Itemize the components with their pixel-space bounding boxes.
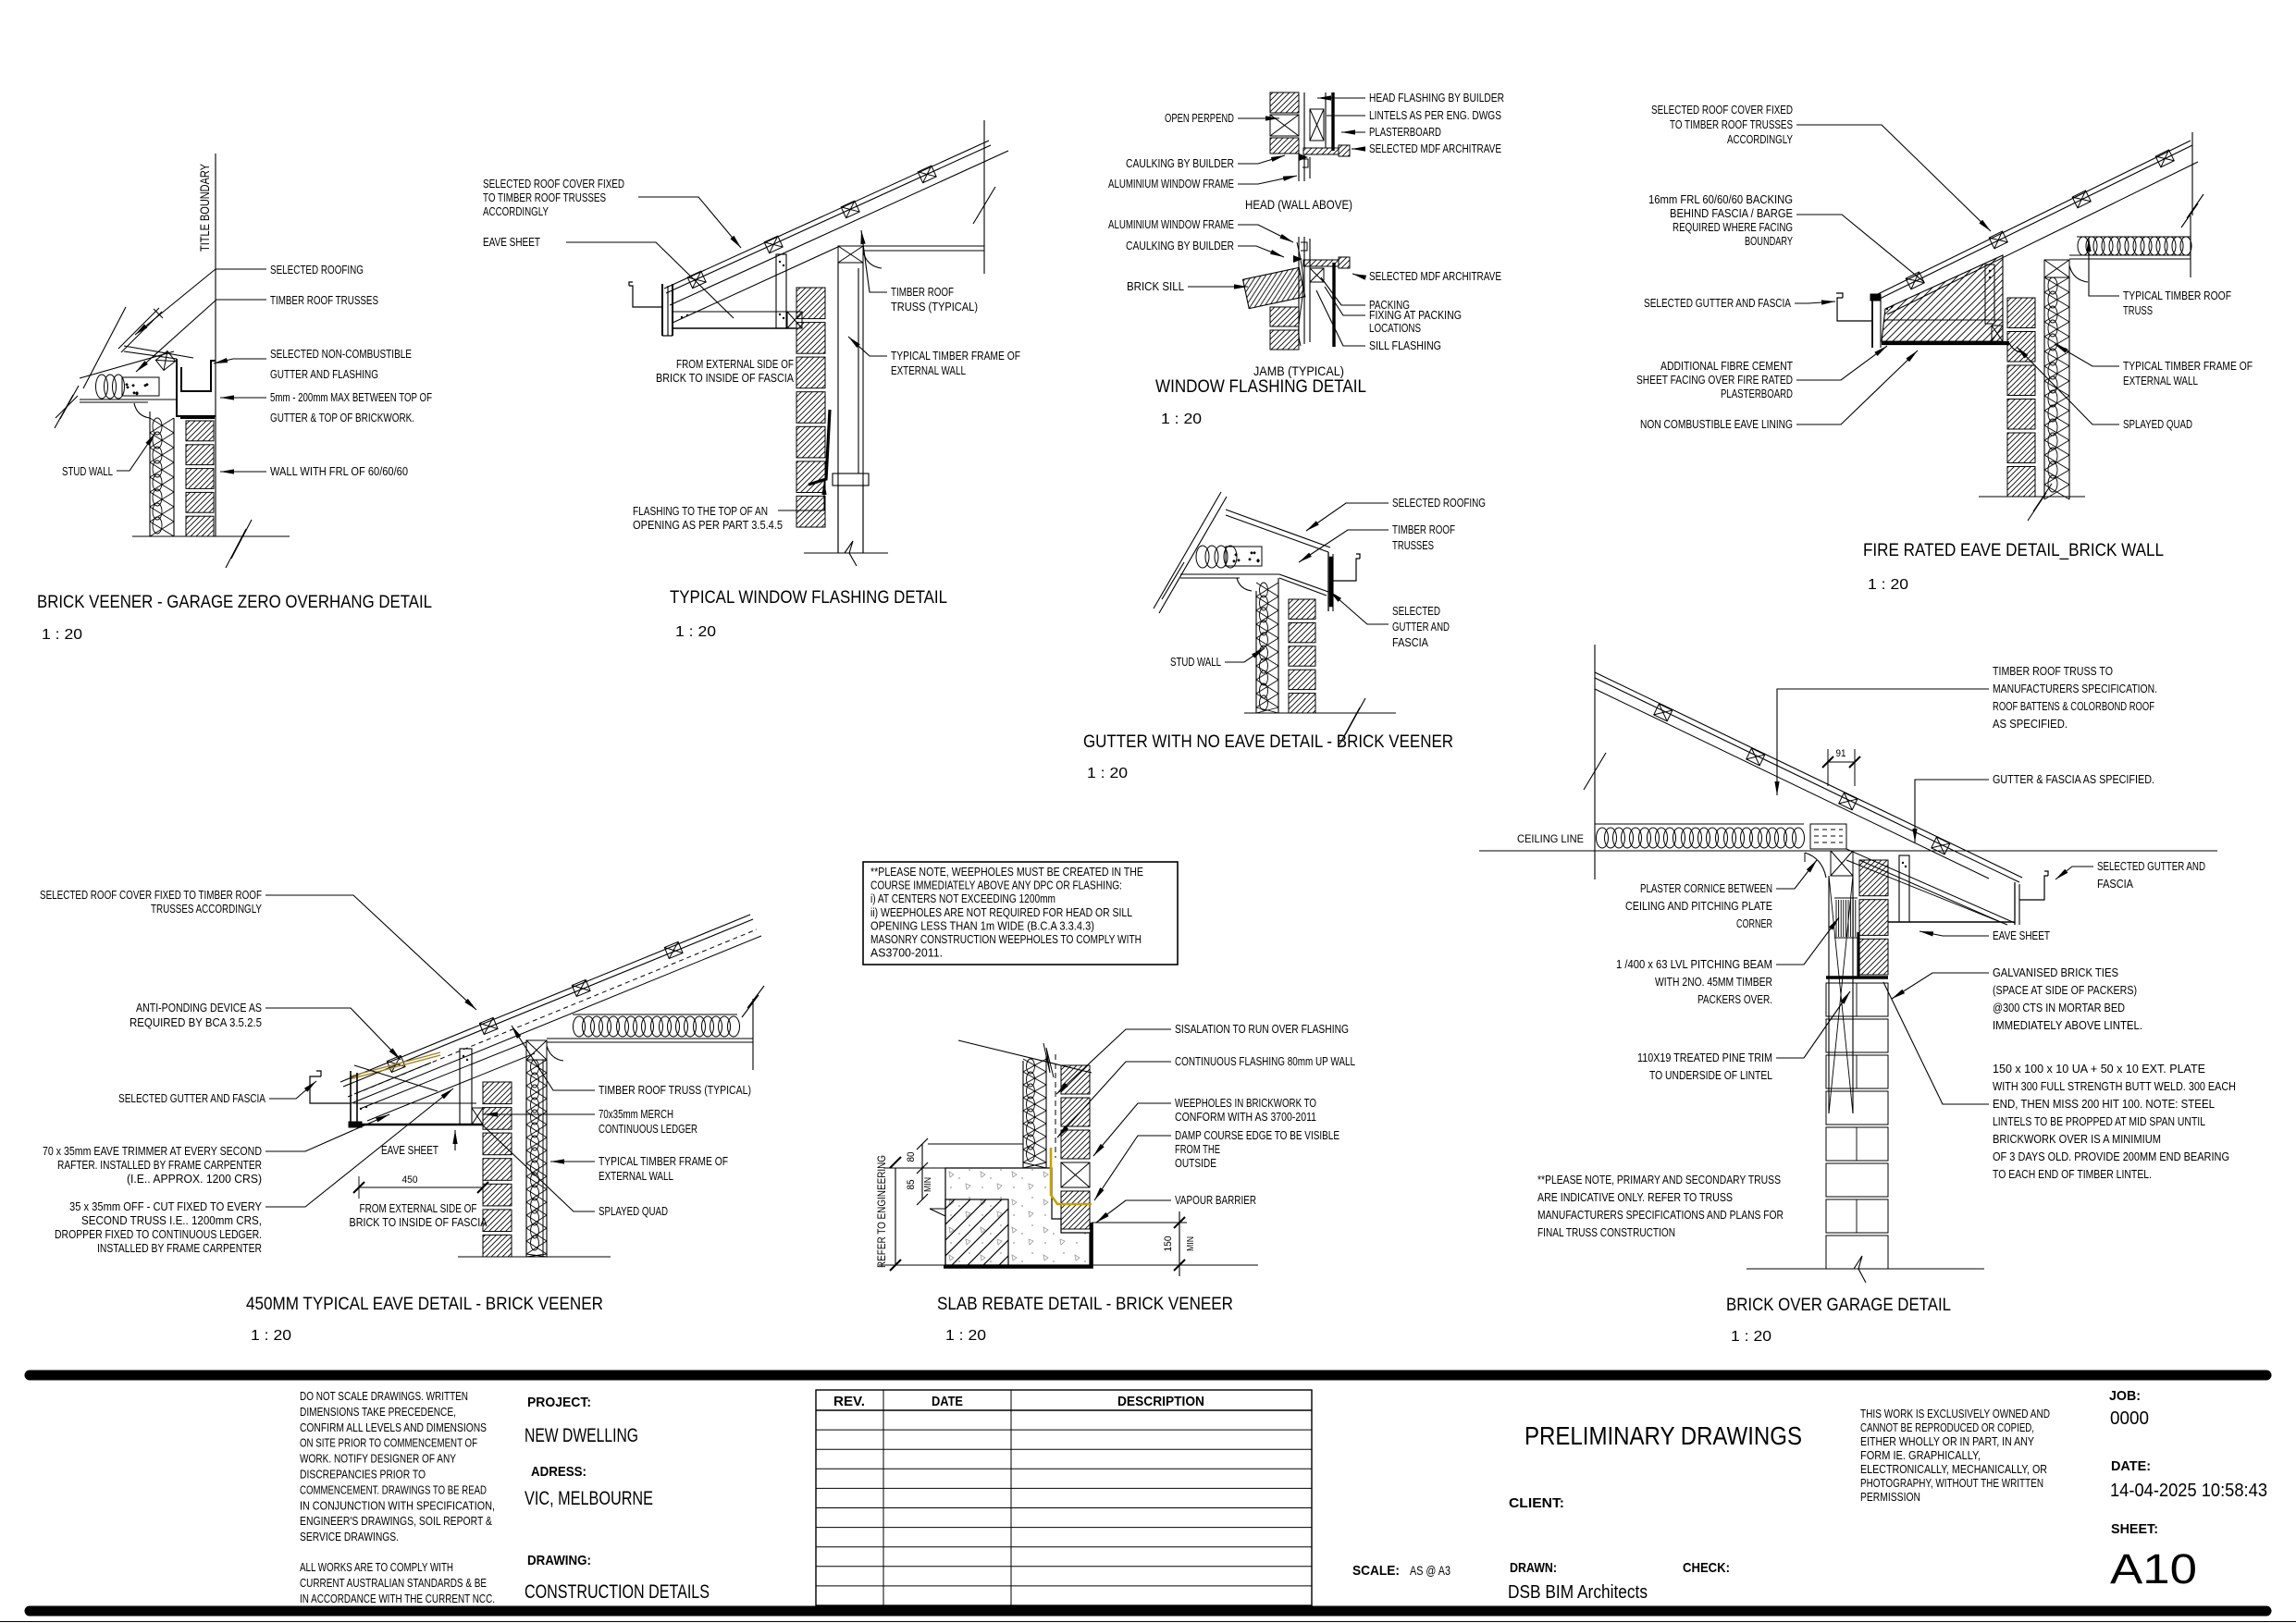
svg-text:FINAL TRUSS CONSTRUCTION: FINAL TRUSS CONSTRUCTION — [1537, 1225, 1675, 1239]
svg-text:SELECTED ROOFING: SELECTED ROOFING — [1392, 496, 1486, 510]
svg-text:EAVE SHEET: EAVE SHEET — [381, 1143, 438, 1157]
svg-text:70 x 35mm EAVE TRIMMER AT: 70 x 35mm EAVE TRIMMER AT EVERY SECOND — [43, 1144, 262, 1158]
svg-text:CONFORM WITH AS 3700-2011: CONFORM WITH AS 3700-2011 — [1175, 1110, 1316, 1124]
svg-text:TYPICAL TIMBER FRAME OF: TYPICAL TIMBER FRAME OF — [2123, 359, 2253, 373]
svg-text:WALL WITH FRL OF 60/60/60: WALL WITH FRL OF 60/60/60 — [270, 464, 408, 478]
svg-text:ADRESS:: ADRESS: — [531, 1464, 586, 1480]
svg-text:END, THEN MISS 200 HIT 100.: END, THEN MISS 200 HIT 100. NOTE: STEEL — [1993, 1097, 2215, 1111]
svg-text:PLASTERBOARD: PLASTERBOARD — [1369, 125, 1441, 139]
svg-text:PLASTERBOARD: PLASTERBOARD — [1721, 387, 1793, 400]
svg-text:JAMB (TYPICAL): JAMB (TYPICAL) — [1253, 363, 1344, 378]
svg-text:SELECTED NON-COMBUSTIBLE: SELECTED NON-COMBUSTIBLE — [270, 347, 412, 361]
svg-text:SELECTED GUTTER AND FASCIA: SELECTED GUTTER AND FASCIA — [1644, 296, 1791, 310]
svg-text:CONFIRM ALL LEVELS AND DIMENSI: CONFIRM ALL LEVELS AND DIMENSIONS — [300, 1421, 487, 1434]
svg-text:PLASTER CORNICE BETWEEN: PLASTER CORNICE BETWEEN — [1640, 881, 1772, 895]
svg-text:450MM TYPICAL EAVE DETAIL - BR: 450MM TYPICAL EAVE DETAIL - BRICK VEENER — [246, 1295, 603, 1314]
svg-text:SECOND TRUSS I.E.. 1200mm: SECOND TRUSS I.E.. 1200mm CRS, — [81, 1213, 262, 1227]
svg-text:AS SPECIFIED.: AS SPECIFIED. — [1993, 717, 2068, 731]
svg-text:BOUNDARY: BOUNDARY — [1745, 234, 1793, 248]
svg-text:CANNOT BE REPRODUCED OR COPIED: CANNOT BE REPRODUCED OR COPIED, — [1860, 1421, 2034, 1434]
svg-text:REV.: REV. — [833, 1394, 865, 1409]
svg-text:SELECTED ROOFING: SELECTED ROOFING — [270, 263, 364, 277]
svg-text:ADDITIONAL FIBRE CEMENT: ADDITIONAL FIBRE CEMENT — [1660, 359, 1793, 373]
svg-text:OF 3 DAYS OLD. PROVIDE 20: OF 3 DAYS OLD. PROVIDE 200MM END BEARING — [1993, 1150, 2229, 1163]
svg-text:ii) WEEPHOLES ARE NOT REQUIRE: ii) WEEPHOLES ARE NOT REQUIRED FOR HEAD … — [870, 906, 1132, 919]
svg-text:TYPICAL WINDOW FLASHING DETAIL: TYPICAL WINDOW FLASHING DETAIL — [670, 588, 947, 608]
svg-text:110X19 TREATED PINE TRIM: 110X19 TREATED PINE TRIM — [1637, 1051, 1772, 1064]
svg-text:WITH 300 FULL STRENGTH BUT: WITH 300 FULL STRENGTH BUTT WELD. 300 EA… — [1993, 1079, 2236, 1093]
svg-text:OPENING AS PER PART 3.5.4.5: OPENING AS PER PART 3.5.4.5 — [633, 518, 783, 532]
svg-text:COMMENCEMENT. DRAWINGS TO BE R: COMMENCEMENT. DRAWINGS TO BE READ — [300, 1483, 487, 1496]
svg-text:FASCIA: FASCIA — [2097, 877, 2133, 891]
svg-text:TO TIMBER ROOF TRUSSES: TO TIMBER ROOF TRUSSES — [1670, 117, 1793, 131]
svg-text:DATE: DATE — [932, 1394, 963, 1409]
svg-text:HEAD (WALL ABOVE): HEAD (WALL ABOVE) — [1245, 197, 1352, 212]
svg-text:ALUMINIUM WINDOW FRAME: ALUMINIUM WINDOW FRAME — [1108, 177, 1234, 191]
svg-text:OUTSIDE: OUTSIDE — [1175, 1156, 1216, 1170]
svg-text:1 : 20: 1 : 20 — [1161, 412, 1202, 427]
svg-text:DATE:: DATE: — [2111, 1458, 2151, 1474]
svg-text:ACCORDINGLY: ACCORDINGLY — [483, 204, 549, 218]
svg-text:DAMP COURSE EDGE TO BE VISIBLE: DAMP COURSE EDGE TO BE VISIBLE — [1175, 1128, 1339, 1142]
svg-text:A10: A10 — [2110, 1545, 2197, 1592]
svg-text:THIS WORK IS EXCLUSIVELY OWNED: THIS WORK IS EXCLUSIVELY OWNED AND — [1860, 1408, 2050, 1420]
svg-text:AS @ A3: AS @ A3 — [1410, 1563, 1450, 1578]
svg-text:REFER TO ENGINEERING: REFER TO ENGINEERING — [875, 1155, 888, 1268]
svg-text:PACKERS OVER.: PACKERS OVER. — [1697, 992, 1772, 1006]
svg-text:70x35mm MERCH: 70x35mm MERCH — [599, 1107, 673, 1121]
svg-text:FROM EXTERNAL SIDE OF: FROM EXTERNAL SIDE OF — [360, 1201, 477, 1215]
svg-text:MIN: MIN — [1185, 1236, 1196, 1251]
svg-text:EXTERNAL WALL: EXTERNAL WALL — [2123, 374, 2198, 387]
svg-text:5mm - 200mm MAX BETWEEN TOP OF: 5mm - 200mm MAX BETWEEN TOP OF — [270, 390, 432, 404]
svg-text:(SPACE AT SIDE OF PACKERS): (SPACE AT SIDE OF PACKERS) — [1993, 983, 2137, 997]
svg-text:ROOF BATTENS & COLORBOND ROOF: ROOF BATTENS & COLORBOND ROOF — [1993, 699, 2154, 713]
svg-text:91: 91 — [1836, 748, 1846, 759]
svg-text:INSTALLED BY FRAME CARPENTER: INSTALLED BY FRAME CARPENTER — [97, 1241, 262, 1255]
svg-text:**PLEASE NOTE, WEEPHOLES MUS: **PLEASE NOTE, WEEPHOLES MUST BE CREATED… — [870, 866, 1143, 879]
svg-text:@300 CTS IN MORTAR BED: @300 CTS IN MORTAR BED — [1993, 1001, 2125, 1014]
svg-text:TYPICAL TIMBER FRAME OF: TYPICAL TIMBER FRAME OF — [599, 1154, 728, 1168]
svg-text:(I.E.. APPROX. 1200 CRS): (I.E.. APPROX. 1200 CRS) — [127, 1172, 262, 1186]
svg-text:PRELIMINARY DRAWINGS: PRELIMINARY DRAWINGS — [1524, 1421, 1802, 1450]
svg-text:1 : 20: 1 : 20 — [1087, 766, 1128, 781]
svg-text:TIMBER ROOF: TIMBER ROOF — [891, 285, 954, 299]
svg-text:TRUSS: TRUSS — [2123, 303, 2153, 317]
svg-text:HEAD FLASHING BY BUILDER: HEAD FLASHING BY BUILDER — [1369, 91, 1504, 105]
svg-text:i) AT CENTERS NOT EXCEEDING 12: i) AT CENTERS NOT EXCEEDING 1200mm — [870, 892, 1055, 905]
svg-text:FORM IE. GRAPHICALLY,: FORM IE. GRAPHICALLY, — [1860, 1449, 1981, 1462]
svg-text:FASCIA: FASCIA — [1392, 635, 1428, 649]
svg-text:SHEET:: SHEET: — [2111, 1521, 2158, 1537]
svg-text:TO TIMBER ROOF TRUSSES: TO TIMBER ROOF TRUSSES — [483, 191, 606, 204]
svg-text:SILL FLASHING: SILL FLASHING — [1369, 339, 1441, 352]
svg-text:PHOTOGRAPHY, WITHOUT THE WRITT: PHOTOGRAPHY, WITHOUT THE WRITTEN — [1860, 1477, 2043, 1490]
svg-text:IN ACCORDANCE WITH THE CURRENT: IN ACCORDANCE WITH THE CURRENT NCC. — [300, 1592, 495, 1605]
svg-text:SHEET FACING OVER FIRE RATED: SHEET FACING OVER FIRE RATED — [1636, 373, 1793, 387]
svg-text:CAULKING BY BUILDER: CAULKING BY BUILDER — [1126, 239, 1234, 252]
svg-text:DESCRIPTION: DESCRIPTION — [1117, 1394, 1204, 1409]
svg-text:450: 450 — [402, 1174, 418, 1186]
svg-text:OPEN PERPEND: OPEN PERPEND — [1165, 111, 1234, 125]
svg-text:DO NOT SCALE DRAWINGS. WRITTEN: DO NOT SCALE DRAWINGS. WRITTEN — [300, 1390, 468, 1403]
svg-text:VAPOUR BARRIER: VAPOUR BARRIER — [1175, 1193, 1256, 1207]
svg-text:BRICK OVER GARAGE DETAIL: BRICK OVER GARAGE DETAIL — [1726, 1296, 1951, 1315]
svg-text:DISCREPANCIES PRIOR TO: DISCREPANCIES PRIOR TO — [300, 1469, 426, 1482]
svg-text:SISALATION TO RUN OVER FLASHIN: SISALATION TO RUN OVER FLASHING — [1175, 1022, 1349, 1036]
svg-text:COURSE IMMEDIATELY ABOVE ANY D: COURSE IMMEDIATELY ABOVE ANY DPC OR FLAS… — [870, 879, 1122, 892]
svg-text:TIMBER ROOF TRUSS (TYPICAL): TIMBER ROOF TRUSS (TYPICAL) — [599, 1083, 751, 1097]
svg-text:OPENING LESS THAN 1m WIDE: OPENING LESS THAN 1m WIDE (B.C.A 3.3.4.3… — [870, 919, 1094, 932]
svg-text:1 : 20: 1 : 20 — [945, 1328, 986, 1344]
svg-text:REQUIRED WHERE FACING: REQUIRED WHERE FACING — [1673, 220, 1793, 234]
svg-text:GUTTER AND: GUTTER AND — [1392, 620, 1450, 633]
svg-text:TYPICAL TIMBER ROOF: TYPICAL TIMBER ROOF — [2123, 289, 2231, 302]
svg-text:NEW DWELLING: NEW DWELLING — [525, 1425, 638, 1446]
svg-text:SELECTED ROOF COVER FIXED: SELECTED ROOF COVER FIXED — [483, 177, 624, 191]
svg-text:TIMBER ROOF: TIMBER ROOF — [1392, 523, 1455, 536]
svg-text:LINTELS AS PER ENG. DWGS: LINTELS AS PER ENG. DWGS — [1369, 108, 1501, 122]
svg-text:LINTELS TO BE PROPPED AT MID S: LINTELS TO BE PROPPED AT MID SPAN UNTIL — [1993, 1114, 2205, 1128]
svg-text:SELECTED GUTTER AND FASCIA: SELECTED GUTTER AND FASCIA — [118, 1091, 265, 1105]
svg-text:ARE INDICATIVE ONLY. REFER TO: ARE INDICATIVE ONLY. REFER TO TRUSS — [1537, 1190, 1733, 1204]
svg-text:GUTTER WITH NO EAVE DETAIL - B: GUTTER WITH NO EAVE DETAIL - BRICK VEENE… — [1083, 732, 1453, 752]
svg-text:PERMISSION: PERMISSION — [1860, 1491, 1920, 1504]
svg-text:FIRE RATED EAVE DETAIL_BRICK W: FIRE RATED EAVE DETAIL_BRICK WALL — [1863, 541, 2164, 560]
svg-text:CHECK:: CHECK: — [1683, 1560, 1730, 1576]
svg-text:FIXING AT PACKING: FIXING AT PACKING — [1369, 309, 1462, 322]
svg-text:GALVANISED BRICK TIES: GALVANISED BRICK TIES — [1993, 965, 2118, 979]
svg-text:TO EACH END OF TIMBER LINTEL.: TO EACH END OF TIMBER LINTEL. — [1993, 1167, 2152, 1181]
svg-text:GUTTER & FASCIA AS SPECIFIED.: GUTTER & FASCIA AS SPECIFIED. — [1993, 772, 2154, 786]
svg-text:1 : 20: 1 : 20 — [1868, 577, 1908, 593]
svg-text:FLASHING TO THE TOP OF AN: FLASHING TO THE TOP OF AN — [633, 504, 768, 518]
svg-text:WEEPHOLES IN BRICKWORK TO: WEEPHOLES IN BRICKWORK TO — [1175, 1096, 1316, 1110]
svg-text:TIMBER ROOF TRUSSES: TIMBER ROOF TRUSSES — [270, 293, 378, 307]
svg-text:LOCATIONS: LOCATIONS — [1369, 322, 1421, 335]
svg-text:ACCORDINGLY: ACCORDINGLY — [1727, 132, 1793, 146]
svg-text:SPLAYED QUAD: SPLAYED QUAD — [2123, 417, 2192, 431]
svg-text:DSB BIM Architects: DSB BIM Architects — [1508, 1582, 1648, 1603]
svg-text:NON COMBUSTIBLE EAVE LINING: NON COMBUSTIBLE EAVE LINING — [1640, 417, 1793, 431]
svg-text:BRICK VEENER - GARAGE ZERO OVE: BRICK VEENER - GARAGE ZERO OVERHANG DETA… — [37, 593, 432, 612]
svg-text:150: 150 — [1163, 1236, 1174, 1252]
svg-text:MANUFACTURERS SPECIFICATIONS: MANUFACTURERS SPECIFICATIONS AND PLANS F… — [1537, 1208, 1784, 1222]
svg-text:ALUMINIUM WINDOW FRAME: ALUMINIUM WINDOW FRAME — [1108, 217, 1234, 231]
svg-text:TIMBER ROOF TRUSS TO: TIMBER ROOF TRUSS TO — [1993, 664, 2113, 678]
svg-text:BRICK TO INSIDE OF FASCIA: BRICK TO INSIDE OF FASCIA — [656, 371, 794, 385]
svg-text:ELECTRONICALLY, MECHANICALLY,: ELECTRONICALLY, MECHANICALLY, OR — [1860, 1463, 2047, 1476]
svg-text:IMMEDIATELY ABOVE LINTEL.: IMMEDIATELY ABOVE LINTEL. — [1993, 1018, 2142, 1032]
svg-text:BRICK SILL: BRICK SILL — [1127, 279, 1184, 293]
svg-text:16mm FRL 60/60/60 BACKING: 16mm FRL 60/60/60 BACKING — [1648, 192, 1793, 206]
svg-text:85: 85 — [906, 1180, 917, 1190]
svg-text:14-04-2025 10:58:43: 14-04-2025 10:58:43 — [2110, 1481, 2267, 1501]
svg-text:CEILING LINE: CEILING LINE — [1517, 832, 1584, 845]
svg-text:EXTERNAL WALL: EXTERNAL WALL — [599, 1169, 673, 1183]
svg-text:AS3700-2011.: AS3700-2011. — [870, 947, 943, 960]
svg-text:TRUSSES: TRUSSES — [1392, 538, 1434, 552]
svg-text:35 x 35mm OFF - CUT FIXED T: 35 x 35mm OFF - CUT FIXED TO EVERY — [69, 1199, 262, 1213]
svg-text:CORNER: CORNER — [1736, 916, 1772, 930]
svg-text:80: 80 — [906, 1152, 917, 1162]
svg-text:MASONRY CONSTRUCTION WEEPHOLES: MASONRY CONSTRUCTION WEEPHOLES TO COMPLY… — [870, 933, 1142, 946]
svg-text:REQUIRED BY BCA 3.5.2.5: REQUIRED BY BCA 3.5.2.5 — [130, 1015, 262, 1029]
svg-text:1 : 20: 1 : 20 — [1731, 1329, 1771, 1345]
svg-text:ANTI-PONDING DEVICE AS: ANTI-PONDING DEVICE AS — [136, 1001, 262, 1014]
svg-text:FROM THE: FROM THE — [1175, 1142, 1220, 1156]
svg-text:STUD WALL: STUD WALL — [62, 464, 113, 478]
svg-text:EAVE SHEET: EAVE SHEET — [1993, 928, 2050, 942]
svg-text:IN CONJUNCTION WITH SPECIFICAT: IN CONJUNCTION WITH SPECIFICATION, — [300, 1499, 495, 1512]
svg-text:BEHIND FASCIA / BARGE: BEHIND FASCIA / BARGE — [1670, 206, 1793, 220]
svg-text:CLIENT:: CLIENT: — [1509, 1495, 1564, 1511]
svg-text:SCALE:: SCALE: — [1352, 1563, 1400, 1579]
svg-text:TYPICAL TIMBER FRAME OF: TYPICAL TIMBER FRAME OF — [891, 349, 1020, 363]
svg-text:CURRENT AUSTRALIAN STANDARDS &: CURRENT AUSTRALIAN STANDARDS & BE — [300, 1577, 487, 1590]
svg-text:TITLE BOUNDARY: TITLE BOUNDARY — [198, 164, 212, 252]
svg-text:SPLAYED QUAD: SPLAYED QUAD — [599, 1204, 668, 1218]
svg-text:BRICK TO INSIDE OF FASCIA: BRICK TO INSIDE OF FASCIA — [350, 1215, 488, 1229]
svg-text:FROM EXTERNAL SIDE OF: FROM EXTERNAL SIDE OF — [676, 357, 794, 371]
svg-text:BRICKWORK OVER IS A MINIMI: BRICKWORK OVER IS A MINIMIUM — [1993, 1132, 2161, 1146]
svg-text:TO UNDERSIDE OF LINTEL: TO UNDERSIDE OF LINTEL — [1649, 1068, 1772, 1082]
svg-text:CONTINUOUS FLASHING 80mm UP WA: CONTINUOUS FLASHING 80mm UP WALL — [1175, 1054, 1355, 1068]
svg-text:SELECTED MDF ARCHITRAVE: SELECTED MDF ARCHITRAVE — [1369, 141, 1501, 155]
svg-text:CAULKING BY BUILDER: CAULKING BY BUILDER — [1126, 156, 1234, 170]
svg-text:ON SITE PRIOR TO COMMENCEMENT: ON SITE PRIOR TO COMMENCEMENT OF — [300, 1437, 477, 1450]
svg-text:PROJECT:: PROJECT: — [527, 1395, 591, 1410]
svg-text:1 : 20: 1 : 20 — [675, 624, 716, 640]
svg-text:SELECTED ROOF COVER FIXED: SELECTED ROOF COVER FIXED — [1651, 103, 1793, 117]
svg-text:VIC, MELBOURNE: VIC, MELBOURNE — [525, 1488, 653, 1509]
svg-text:SELECTED: SELECTED — [1392, 604, 1440, 618]
svg-text:JOB:: JOB: — [2109, 1388, 2141, 1404]
svg-text:1 : 20: 1 : 20 — [42, 627, 82, 643]
svg-text:SELECTED MDF ARCHITRAVE: SELECTED MDF ARCHITRAVE — [1369, 269, 1501, 283]
svg-text:ALL WORKS ARE TO COMPLY WITH: ALL WORKS ARE TO COMPLY WITH — [300, 1561, 453, 1574]
svg-text:RAFTER. INSTALLED BY FRAME CAR: RAFTER. INSTALLED BY FRAME CARPENTER — [57, 1158, 262, 1172]
svg-text:STUD WALL: STUD WALL — [1170, 655, 1221, 669]
svg-text:DRAWN:: DRAWN: — [1510, 1560, 1557, 1576]
svg-text:MIN: MIN — [922, 1177, 933, 1192]
svg-text:WINDOW FLASHING DETAIL: WINDOW FLASHING DETAIL — [1155, 377, 1366, 397]
svg-text:CONSTRUCTION DETAILS: CONSTRUCTION DETAILS — [525, 1581, 710, 1603]
svg-text:TRUSSES ACCORDINGLY: TRUSSES ACCORDINGLY — [151, 902, 262, 916]
svg-text:**PLEASE NOTE, PRIMARY AND S: **PLEASE NOTE, PRIMARY AND SECONDARY TRU… — [1537, 1173, 1781, 1187]
svg-text:150 x 100 x 10 UA + 50 x: 150 x 100 x 10 UA + 50 x 10 EXT. PLATE — [1993, 1062, 2205, 1076]
svg-text:EITHER WHOLLY OR IN PART, IN A: EITHER WHOLLY OR IN PART, IN ANY — [1860, 1435, 2035, 1448]
svg-text:GUTTER & TOP OF BRICKWORK.: GUTTER & TOP OF BRICKWORK. — [270, 411, 414, 424]
svg-text:WORK. NOTIFY DESIGNER OF ANY: WORK. NOTIFY DESIGNER OF ANY — [300, 1453, 457, 1466]
svg-text:SLAB REBATE DETAIL - BRICK VEN: SLAB REBATE DETAIL - BRICK VENEER — [937, 1295, 1233, 1314]
svg-text:1 /400 x 63 LVL PITCHING BEAM: 1 /400 x 63 LVL PITCHING BEAM — [1616, 957, 1772, 971]
svg-text:GUTTER AND FLASHING: GUTTER AND FLASHING — [270, 367, 378, 381]
svg-text:SERVICE DRAWINGS.: SERVICE DRAWINGS. — [300, 1531, 399, 1543]
svg-text:ENGINEER'S DRAWINGS, SOIL REPO: ENGINEER'S DRAWINGS, SOIL REPORT & — [300, 1515, 493, 1528]
svg-text:SELECTED ROOF COVER FIXED TO T: SELECTED ROOF COVER FIXED TO TIMBER ROOF — [40, 888, 262, 902]
svg-text:DIMENSIONS TAKE PRECEDENCE,: DIMENSIONS TAKE PRECEDENCE, — [300, 1406, 456, 1419]
svg-text:1 : 20: 1 : 20 — [251, 1328, 291, 1344]
svg-text:TRUSS (TYPICAL): TRUSS (TYPICAL) — [891, 300, 978, 314]
svg-text:SELECTED GUTTER AND: SELECTED GUTTER AND — [2097, 859, 2205, 873]
svg-text:DRAWING:: DRAWING: — [527, 1553, 591, 1568]
svg-text:CONTINUOUS LEDGER: CONTINUOUS LEDGER — [599, 1122, 697, 1136]
svg-text:0000: 0000 — [2110, 1408, 2149, 1429]
svg-text:EAVE SHEET: EAVE SHEET — [483, 235, 540, 249]
svg-text:MANUFACTURERS SPECIFICATION.: MANUFACTURERS SPECIFICATION. — [1993, 682, 2157, 695]
svg-text:WITH 2NO. 45MM TIMBER: WITH 2NO. 45MM TIMBER — [1655, 975, 1772, 989]
svg-text:CEILING AND PITCHING PLATE: CEILING AND PITCHING PLATE — [1625, 899, 1772, 913]
svg-text:DROPPER FIXED TO CONTINUOUS: DROPPER FIXED TO CONTINUOUS LEDGER. — [55, 1227, 262, 1241]
svg-text:EXTERNAL WALL: EXTERNAL WALL — [891, 363, 966, 377]
